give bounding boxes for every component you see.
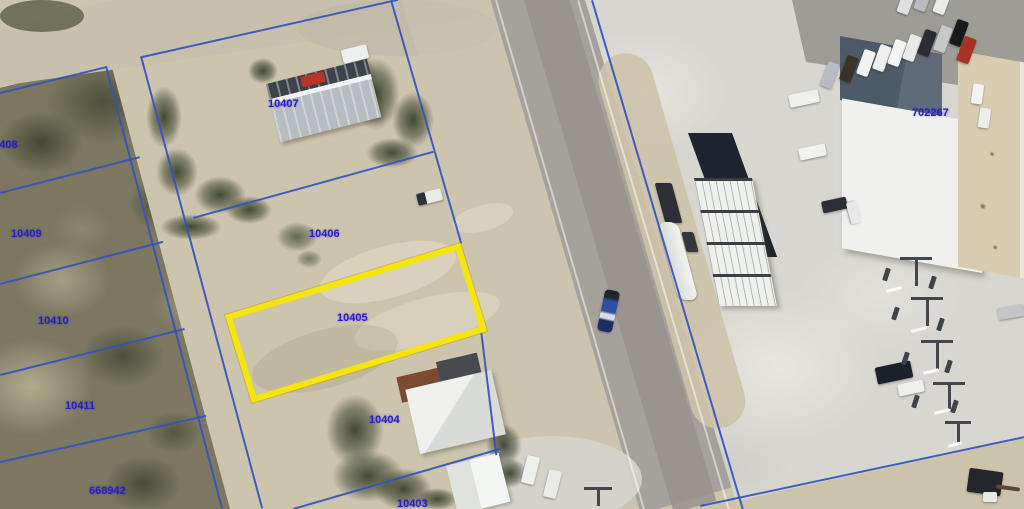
parcel-label-10406: 10406: [309, 228, 340, 240]
parcel-label-10403: 10403: [397, 498, 428, 509]
parcel-label-10409: 10409: [11, 228, 42, 240]
light-pole-stem: [936, 343, 939, 369]
tree: [226, 196, 272, 224]
light-pole-stem: [597, 490, 600, 506]
parcel-label-702267: 702267: [912, 107, 949, 119]
parcel-label-10405: 10405: [337, 312, 368, 324]
light-pole-stem: [948, 385, 951, 409]
store-front-strip: [958, 51, 1024, 279]
light-pole-stem: [926, 300, 929, 326]
aerial-parcel-map[interactable]: 10408 10409 10410 10411 668942 10407 104…: [0, 0, 1024, 509]
tree: [160, 214, 222, 240]
parcel-label-10411: 10411: [65, 400, 95, 412]
parcel-label-668942: 668942: [89, 485, 126, 497]
light-pole-stem: [915, 260, 918, 286]
parcel-label-10407: 10407: [268, 98, 299, 110]
scrub-patch: [296, 250, 322, 268]
parcel-label-10404: 10404: [369, 414, 400, 426]
parcel-label-10410: 10410: [38, 315, 69, 327]
tree: [248, 58, 278, 84]
parcel-label-10408: 10408: [0, 139, 18, 151]
car-white-10406: [416, 188, 443, 206]
light-pole-stem: [957, 424, 960, 442]
tractor-white-bit: [983, 492, 997, 502]
scrub-corner: [0, 0, 84, 32]
